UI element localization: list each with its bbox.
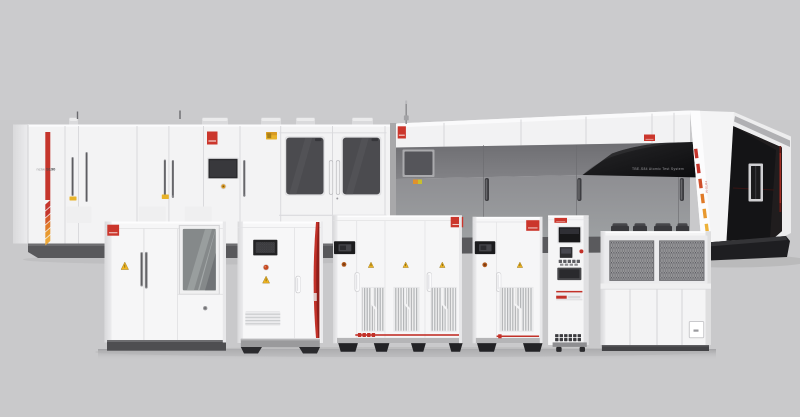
svg-text:ncrw S190: ncrw S190 [37,167,57,172]
svg-text:TBE-S84 Atomic Test System: TBE-S84 Atomic Test System [632,167,684,171]
